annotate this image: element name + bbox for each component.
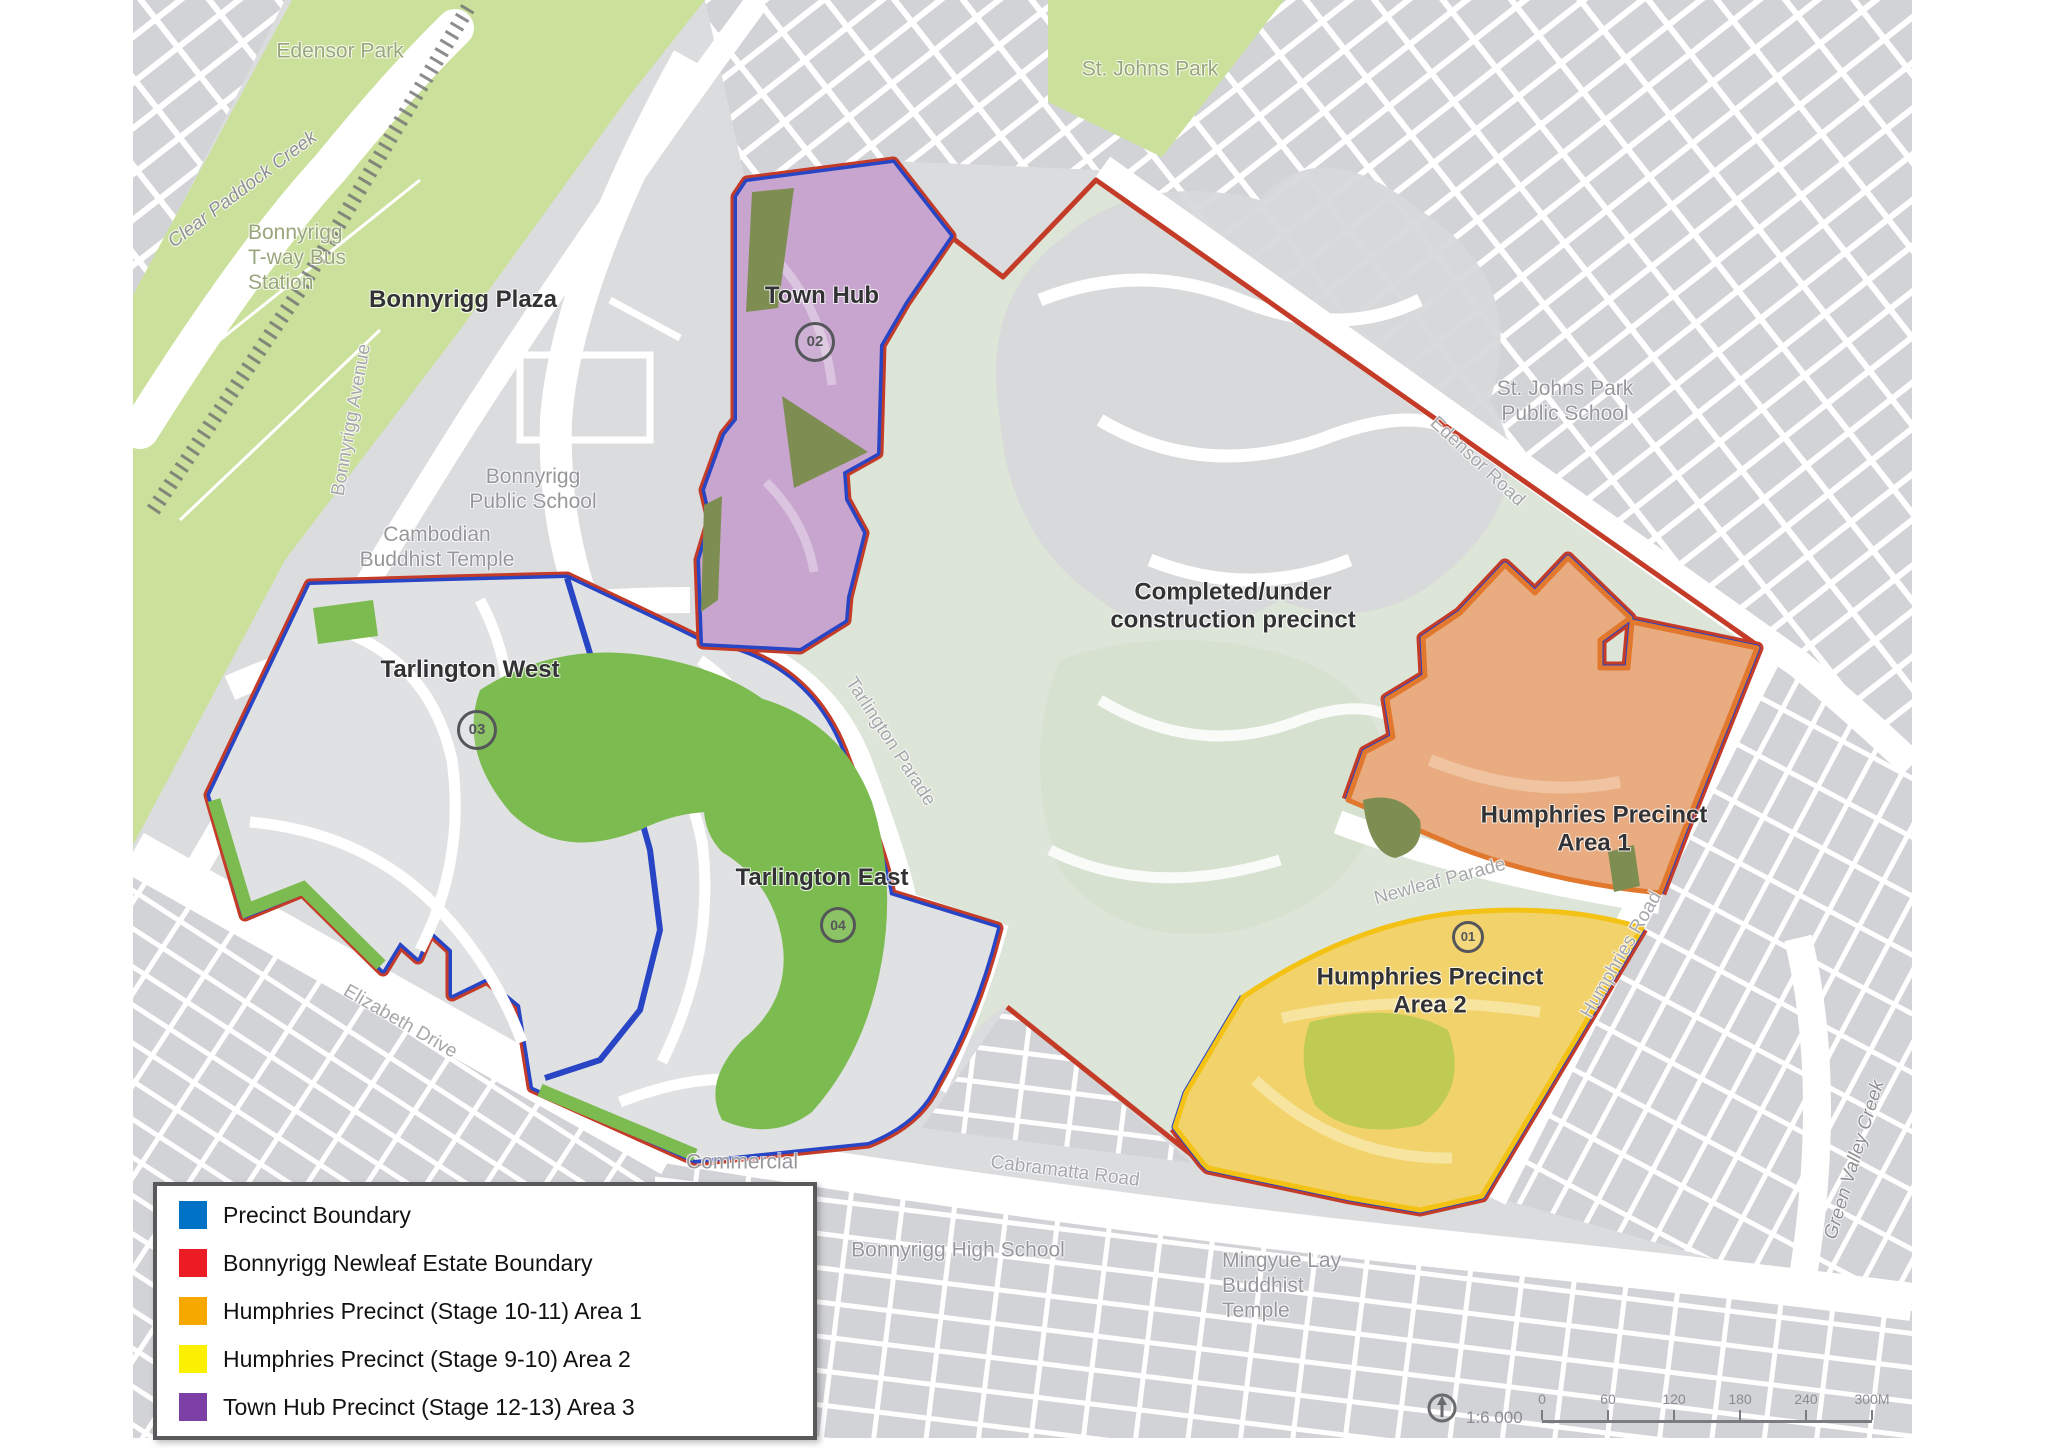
scale-tick [1805,1410,1807,1420]
scale-tick-label: 60 [1600,1391,1616,1407]
scale-tick-label: 120 [1662,1391,1685,1407]
map-page: Edensor ParkSt. Johns ParkClear Paddock … [0,0,2048,1448]
scale-tick-label: 180 [1728,1391,1751,1407]
legend-label: Town Hub Precinct (Stage 12-13) Area 3 [223,1394,635,1421]
scale-tick [1673,1410,1675,1420]
legend-label: Humphries Precinct (Stage 9-10) Area 2 [223,1346,631,1373]
legend-label: Bonnyrigg Newleaf Estate Boundary [223,1250,593,1277]
legend-swatch [179,1201,207,1229]
legend-swatch [179,1249,207,1277]
area2-park [1304,1013,1455,1130]
scale-tick [1607,1410,1609,1420]
scale-tick-label: 300M [1854,1391,1889,1407]
scale-tick-label: 0 [1538,1391,1546,1407]
legend-item: Humphries Precinct (Stage 9-10) Area 2 [179,1345,813,1373]
legend-item: Town Hub Precinct (Stage 12-13) Area 3 [179,1393,813,1421]
scale-tick-label: 240 [1794,1391,1817,1407]
legend-label: Precinct Boundary [223,1202,411,1229]
scale-tick [1871,1410,1873,1420]
legend-item: Precinct Boundary [179,1201,813,1229]
legend-label: Humphries Precinct (Stage 10-11) Area 1 [223,1298,642,1325]
legend-item: Bonnyrigg Newleaf Estate Boundary [179,1249,813,1277]
legend-item: Humphries Precinct (Stage 10-11) Area 1 [179,1297,813,1325]
scale-ratio: 1:6 000 [1466,1408,1523,1428]
legend-swatch [179,1297,207,1325]
scale-bar: 1:6 000 060120180240300M [1424,1384,1894,1436]
legend-swatch [179,1345,207,1373]
north-arrow-icon [1424,1388,1460,1428]
scale-tick [1739,1410,1741,1420]
legend: Precinct BoundaryBonnyrigg Newleaf Estat… [153,1182,817,1440]
legend-swatch [179,1393,207,1421]
scale-tick [1541,1410,1543,1420]
scale-bar-line: 060120180240300M [1542,1384,1872,1423]
